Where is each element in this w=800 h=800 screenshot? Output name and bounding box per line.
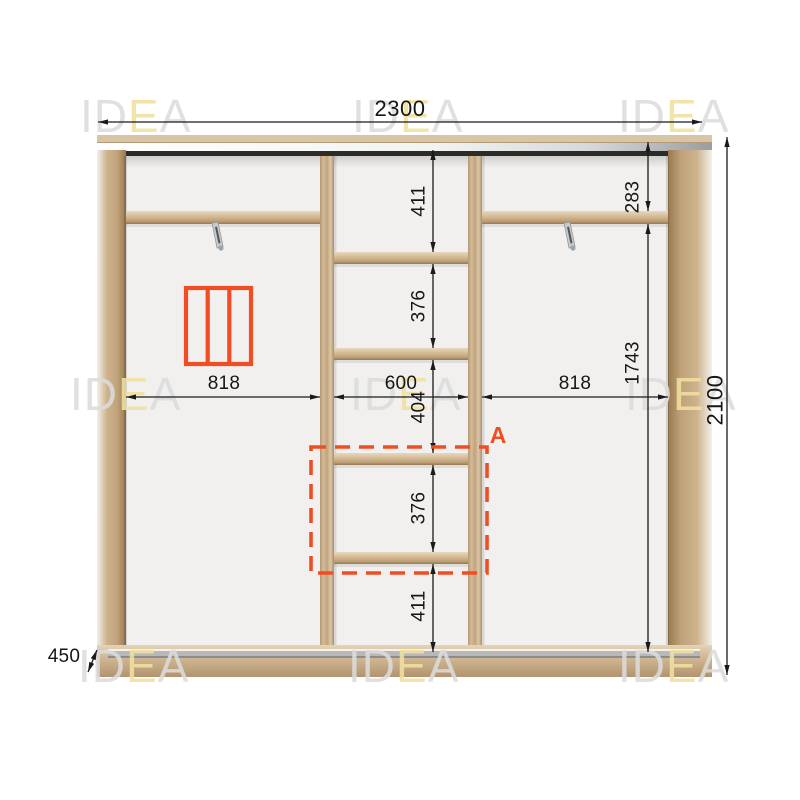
center-shelf-1: [334, 252, 468, 264]
dim-right-section-label: 818: [559, 373, 592, 394]
shelf-left-section: [126, 211, 320, 224]
dim-center-middle-label: 404: [409, 391, 430, 424]
watermark-letter-e: E: [673, 368, 705, 420]
watermark-letter-e: E: [666, 640, 698, 692]
watermark-idea: IDEA: [80, 90, 191, 142]
rail-bracket-hook: [570, 245, 575, 250]
rail-bracket-hook: [218, 245, 223, 250]
watermark-letter-a: A: [698, 90, 730, 142]
detail-marker-label: A: [490, 422, 507, 448]
watermark-letter-a: A: [430, 368, 462, 420]
watermark-letter-a: A: [698, 640, 730, 692]
dim-center-upper-label: 376: [409, 290, 430, 323]
center-shelf-2-shadow: [334, 360, 468, 363]
dim-center-bottom-label: 411: [409, 590, 430, 621]
watermark-idea: IDEA: [618, 90, 729, 142]
watermark-letter-e: E: [126, 640, 158, 692]
watermark-idea: IDEA: [78, 640, 189, 692]
watermark-idea: IDEA: [618, 640, 729, 692]
watermark-letters-id: ID: [618, 90, 666, 142]
watermark-idea: IDEA: [70, 368, 181, 420]
watermark-letters-id: ID: [78, 640, 126, 692]
dim-left-section-label: 818: [208, 373, 241, 394]
watermark-idea: IDEA: [348, 640, 459, 692]
center-shelf-2: [334, 348, 468, 360]
shelf-left-shadow: [126, 224, 320, 227]
dim-right-main-label: 1743: [623, 341, 644, 384]
watermark-letter-a: A: [158, 640, 190, 692]
dim-right-top-label: 283: [623, 181, 644, 214]
wardrobe-technical-drawing: IDEA IDEA IDEA IDEA IDEA IDEA IDEA IDEA …: [0, 0, 800, 800]
center-shelf-3-shadow: [334, 465, 468, 468]
dim-center-lower-label: 376: [409, 492, 430, 525]
watermark-letter-a: A: [150, 368, 182, 420]
divider-right-shadow: [482, 156, 485, 645]
watermark-letter-e: E: [666, 90, 698, 142]
watermark-letter-e: E: [128, 90, 160, 142]
watermark-letter-e: E: [396, 640, 428, 692]
watermark-letters-id: ID: [80, 90, 128, 142]
watermark-letters-id: ID: [348, 640, 396, 692]
dim-depth-label: 450: [48, 646, 81, 667]
center-shelf-3: [334, 453, 468, 465]
dim-total-height-label: 2100: [703, 375, 728, 426]
center-shelf-4: [334, 552, 468, 564]
center-shelf-1-shadow: [334, 264, 468, 267]
dim-center-top-label: 411: [409, 185, 430, 216]
dim-total-width-label: 2300: [375, 96, 426, 121]
watermark-letter-e: E: [118, 368, 150, 420]
door-track-dark: [126, 151, 668, 156]
center-shelf-4-shadow: [334, 564, 468, 567]
watermark-letters-id: ID: [70, 368, 118, 420]
door-track-cover: [97, 143, 712, 152]
interior-top-shadow: [126, 156, 668, 168]
shelf-right-shadow: [482, 224, 668, 227]
watermark-letter-a: A: [432, 90, 464, 142]
wardrobe-drawing-canvas: IDEA IDEA IDEA IDEA IDEA IDEA IDEA IDEA …: [0, 0, 800, 800]
divider-left-shadow: [334, 156, 337, 645]
watermark-letter-a: A: [160, 90, 192, 142]
watermark-letters-id: ID: [618, 640, 666, 692]
